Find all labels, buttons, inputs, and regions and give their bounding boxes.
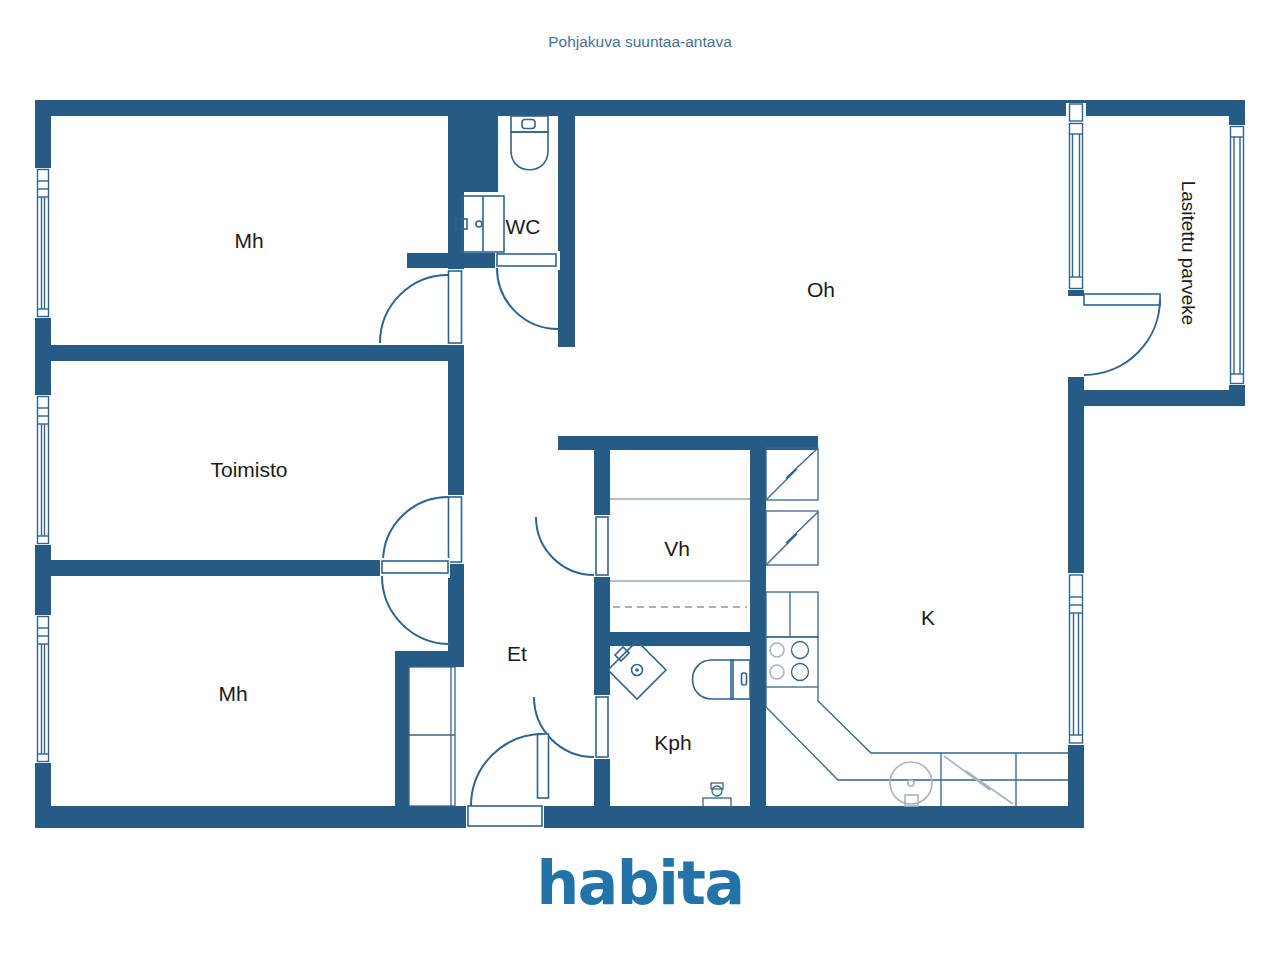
room-label-oh: Oh <box>807 278 835 301</box>
floor-plan-canvas: Mh WC Oh Toimisto Vh K Mh Et Kph Lasitet… <box>0 0 1280 960</box>
kitchen-cabinet <box>766 592 818 637</box>
kitchen-sink-icon <box>890 762 932 806</box>
window <box>34 168 52 318</box>
room-label-wc: WC <box>506 215 541 238</box>
wardrobe-icon <box>766 448 818 500</box>
wall-et-closet-top <box>395 651 464 667</box>
door-wc <box>495 251 560 329</box>
habita-logo: habita <box>0 850 1280 916</box>
room-label-balcony: Lasitettu parveke <box>1178 181 1199 326</box>
room-label-vh: Vh <box>664 537 690 560</box>
shower-mixer-icon <box>703 783 731 807</box>
door-entrance <box>466 734 549 830</box>
stove-icon <box>766 637 818 687</box>
door-balcony <box>1066 294 1160 377</box>
room-labels: Mh WC Oh Toimisto Vh K Mh Et Kph Lasitet… <box>210 181 1199 754</box>
room-label-kph: Kph <box>654 731 691 754</box>
room-label-mh-bottom: Mh <box>218 682 247 705</box>
wall-bottom <box>35 806 1084 828</box>
wardrobe-icon <box>766 511 818 565</box>
door-mh-bottom <box>380 558 450 644</box>
washing-machine-icon <box>608 641 666 699</box>
wall-corridor-right <box>558 100 575 347</box>
toilet-icon <box>693 660 751 699</box>
doors <box>380 251 1160 830</box>
room-label-mh-top: Mh <box>234 229 263 252</box>
balcony-glazing-left <box>1066 103 1086 290</box>
window <box>34 615 52 763</box>
wall-kph-top <box>594 632 766 646</box>
wall-wc-shaft <box>448 113 498 192</box>
wall-balcony-bottom <box>1068 390 1245 406</box>
wall-top <box>35 100 1245 116</box>
room-label-k: K <box>921 606 935 629</box>
room-label-et: Et <box>507 642 527 665</box>
door-mh-top <box>380 269 466 345</box>
kitchen-counter <box>766 687 1068 806</box>
door-toimisto <box>383 495 466 564</box>
balcony-glazing-right <box>1227 125 1247 385</box>
wall-mh-toimisto <box>35 345 453 361</box>
wall-et-closet-side <box>395 667 409 806</box>
door-vh <box>536 515 612 577</box>
toilet-icon <box>511 116 548 170</box>
wall-vh-right <box>750 450 766 806</box>
windows <box>34 103 1247 763</box>
window <box>34 395 52 545</box>
wall-wc-bottom <box>407 253 495 268</box>
hall-closet <box>409 667 455 806</box>
window <box>1066 573 1086 745</box>
room-label-toimisto: Toimisto <box>210 458 287 481</box>
